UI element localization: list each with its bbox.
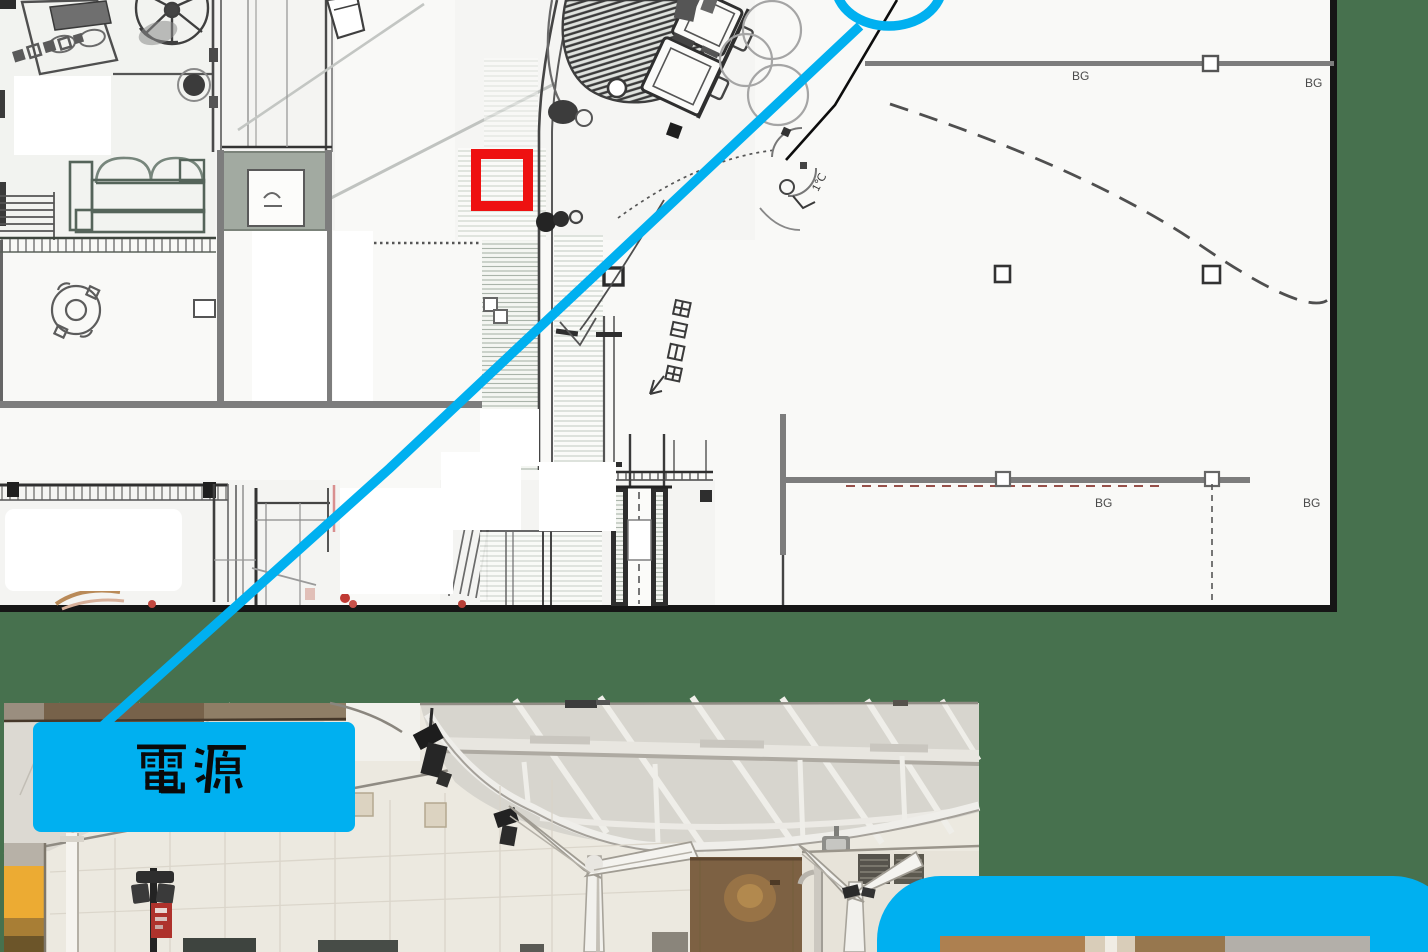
svg-text:BG: BG	[1305, 76, 1322, 90]
svg-text:BG: BG	[1072, 69, 1089, 83]
svg-text:BG: BG	[1303, 496, 1320, 510]
svg-text:BG: BG	[1095, 496, 1112, 510]
